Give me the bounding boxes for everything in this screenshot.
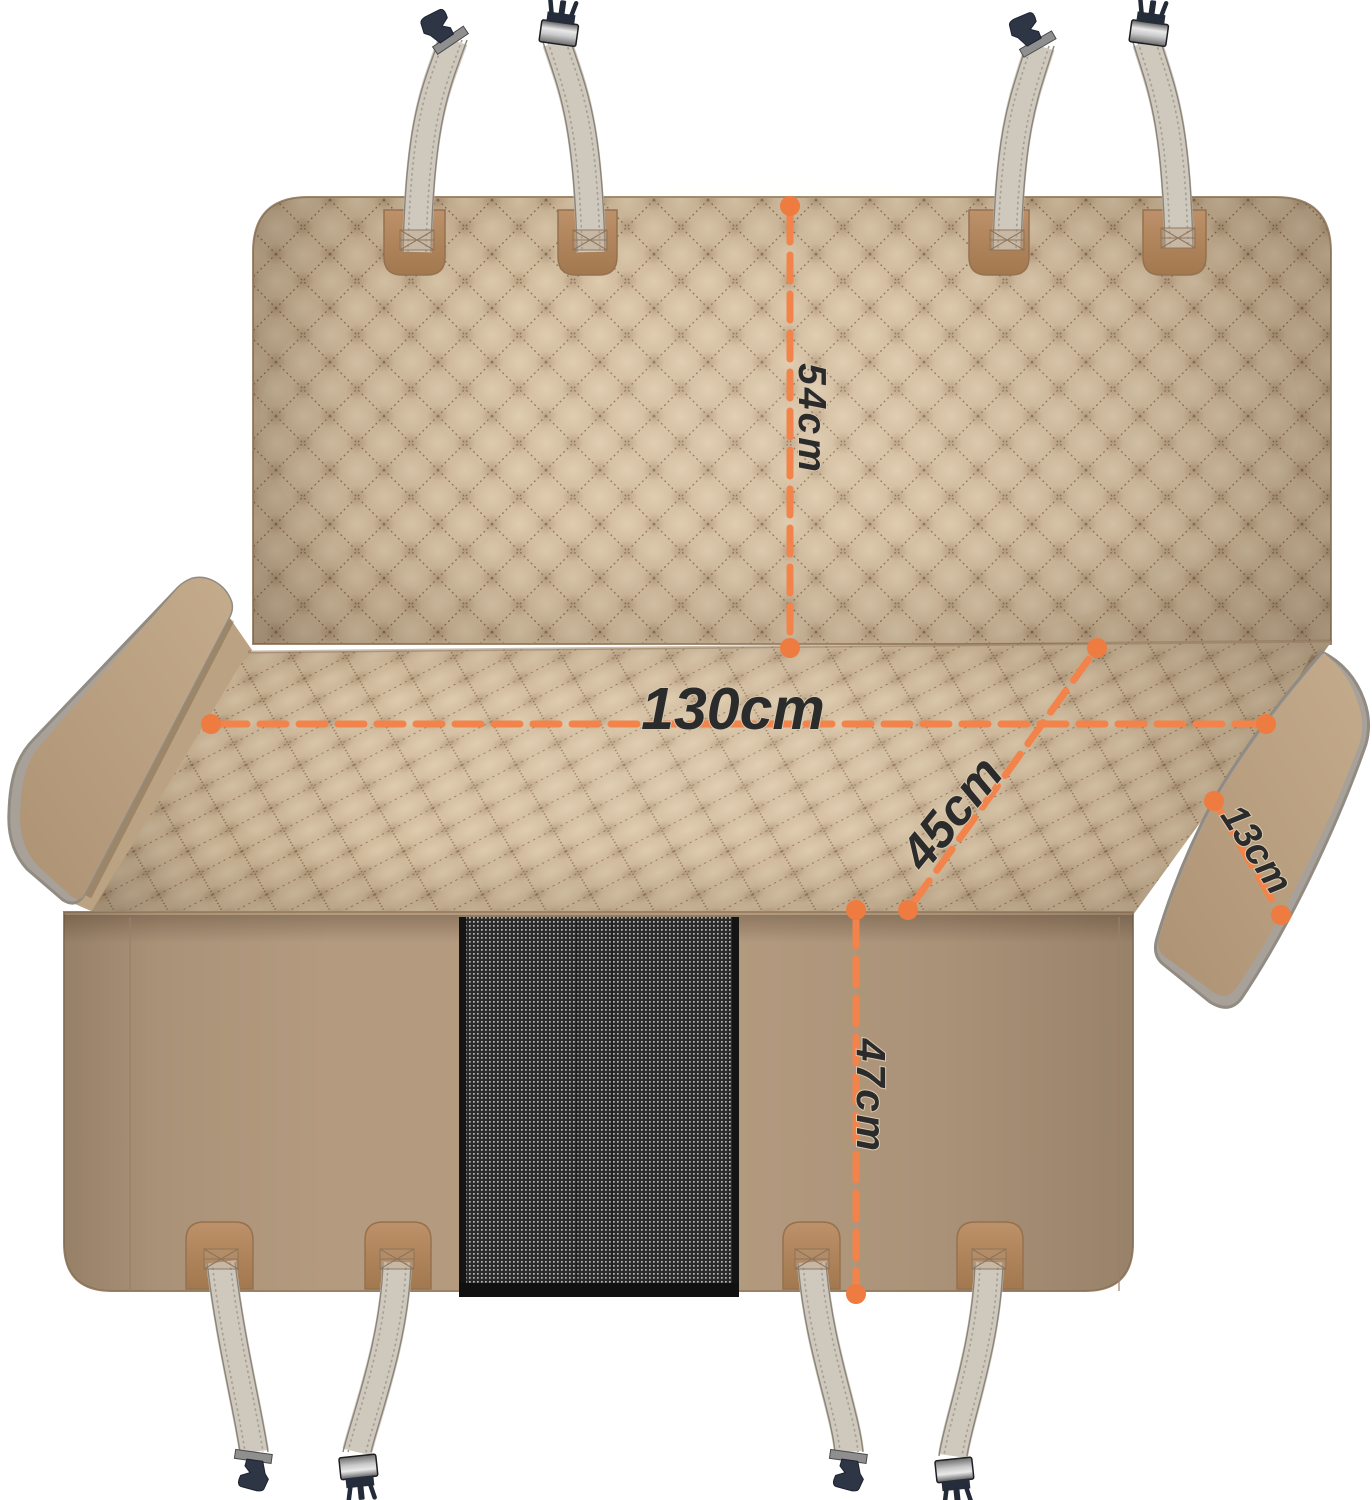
svg-text:54cm: 54cm [790,363,833,475]
svg-text:130cm: 130cm [641,676,825,742]
svg-text:47cm: 47cm [848,1038,894,1154]
